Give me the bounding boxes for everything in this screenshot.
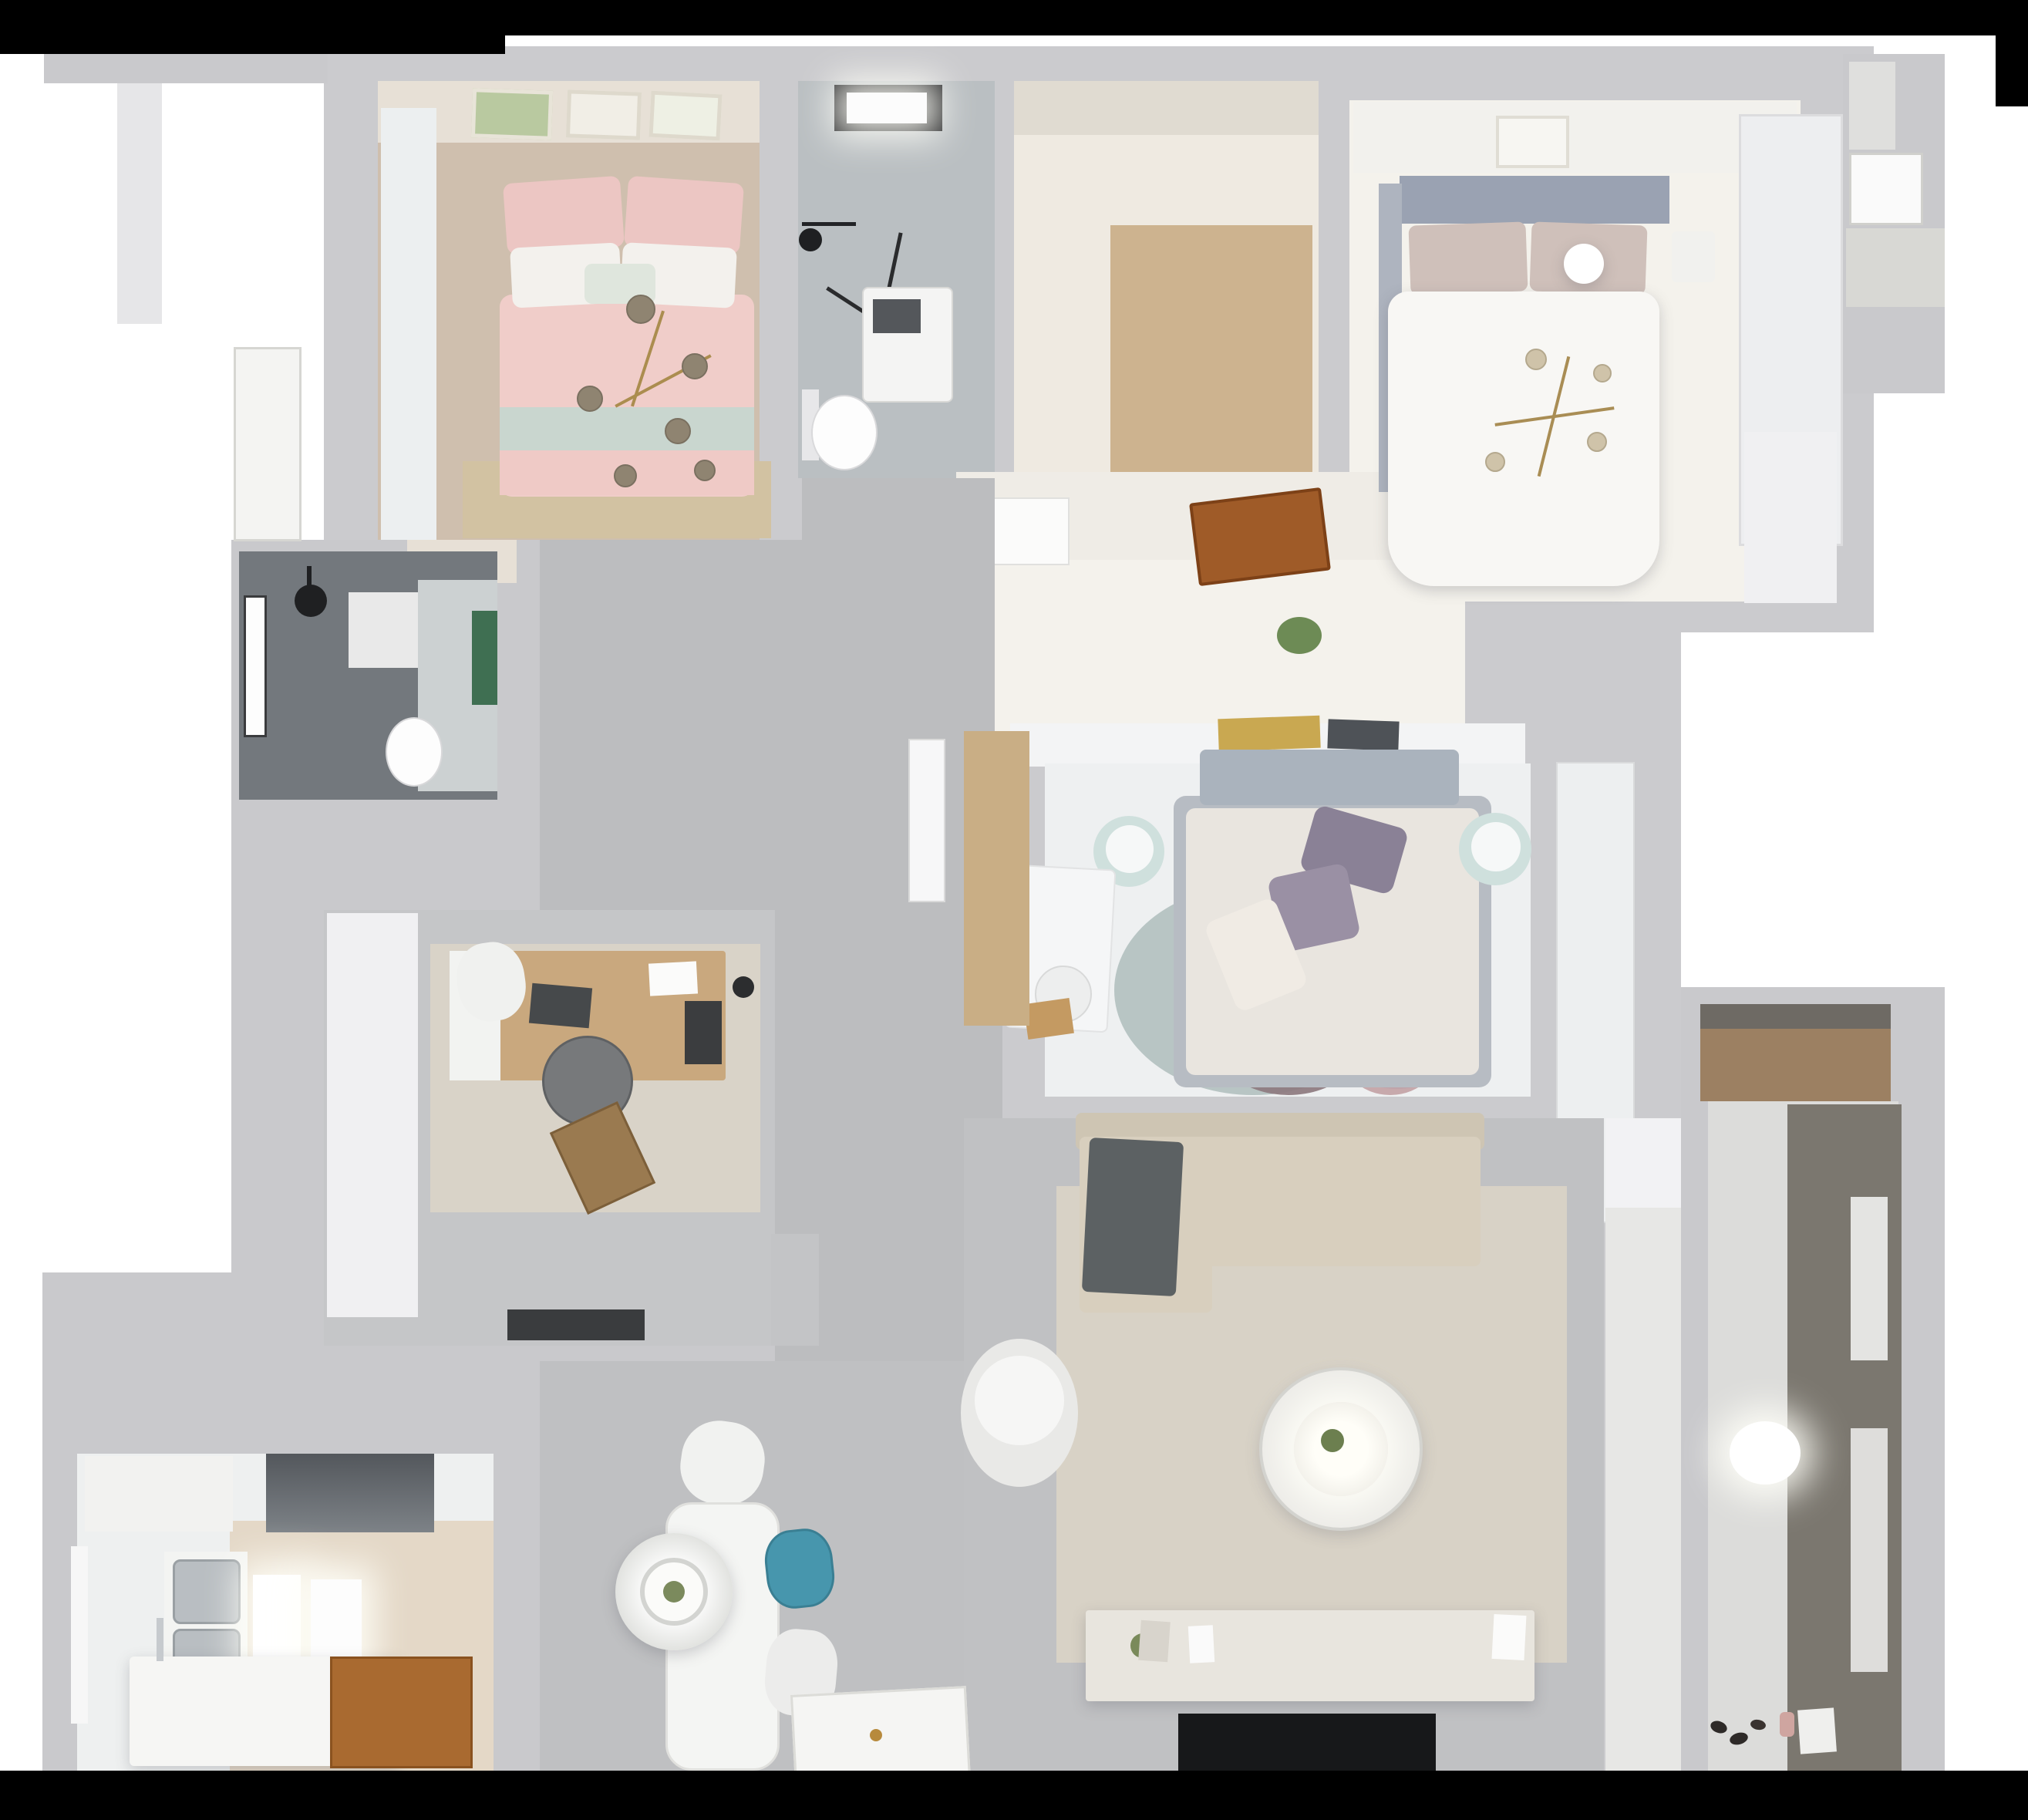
bathroom1-shower-head [799, 228, 822, 251]
tv-console-decor-frame [1138, 1620, 1171, 1663]
study-shelf-dark [685, 1001, 722, 1064]
master-curtain-corner [1744, 432, 1837, 603]
front-door-handle [870, 1729, 882, 1741]
dining-pendant-plant [663, 1581, 685, 1603]
balcony-box-white [1797, 1707, 1837, 1754]
master-door-wood [1189, 487, 1331, 586]
master-chandelier-shade-1 [1525, 349, 1547, 370]
kitchen-fridge-dark [266, 1454, 434, 1532]
foyer-plant [1277, 617, 1322, 654]
balcony-niche-wood-shelf [1700, 1029, 1891, 1101]
bedroom1-chandelier-bulb-1 [626, 295, 655, 324]
closet-ceiling-shade [1014, 81, 1319, 135]
hallway-wood-strip [964, 731, 1029, 1026]
tv-console-decor-right [1492, 1614, 1527, 1660]
bedroom1-chandelier-bulb-3 [577, 386, 603, 412]
bedroom2-pouf-left-top [1106, 825, 1154, 873]
bedroom1-artwork-botanical-2 [566, 89, 642, 140]
balcony-bottle-pink [1780, 1712, 1794, 1737]
bedroom1-chandelier-bulb-6 [694, 460, 716, 481]
tv-panel [1178, 1714, 1436, 1777]
master-pillow-left [1408, 221, 1528, 295]
wall-face-top-left [117, 83, 162, 324]
study-laptop-dark [529, 983, 592, 1029]
living-pouf-seat [975, 1356, 1064, 1445]
bedroom1-chandelier-bulb-5 [614, 464, 637, 487]
bedroom2-pouf-right-top [1471, 822, 1521, 871]
bedroom1-chandelier-bulb-2 [682, 353, 708, 379]
toilet2-bowl [386, 717, 443, 787]
study-door-threshold [771, 1234, 819, 1346]
foyer-floor-terrazzo [956, 560, 1465, 734]
bathroom2-window [244, 595, 267, 737]
coffee-table-plant [1321, 1429, 1344, 1452]
master-duvet [1388, 292, 1659, 586]
hallway-door-leaf [908, 739, 945, 902]
bedroom1-artwork-botanical-3 [648, 91, 722, 141]
master-chandelier-shade-4 [1593, 364, 1612, 383]
bathroom2-green-accent [472, 611, 497, 705]
master-chandelier-shade-2 [1587, 432, 1607, 452]
kitchen-wood-mat [330, 1657, 473, 1768]
right-corridor-louvers [1846, 228, 1945, 307]
bedroom1-chandelier-bulb-4 [665, 418, 691, 444]
master-nightstand-right [1672, 231, 1715, 282]
bathroom2-shower-head [295, 585, 327, 617]
floorplan-render [0, 0, 2028, 1820]
kitchen-faucet [157, 1618, 163, 1661]
sofa-throw-dark [1082, 1137, 1184, 1296]
bedroom2-headboard [1200, 750, 1459, 805]
study-curtain [327, 913, 418, 1317]
bedroom1-curtain [381, 108, 436, 540]
master-sphere-lamp [1564, 244, 1604, 284]
living-curtain-corner [1605, 1118, 1681, 1208]
balcony-blind-slit-1 [1851, 1197, 1888, 1360]
balcony-pendant-ball [1730, 1421, 1801, 1485]
exterior-door-leaf [234, 347, 302, 541]
study-floor-mat [507, 1309, 645, 1340]
bedroom1-artwork-botanical-1 [471, 88, 553, 140]
study-desk-lamp [733, 976, 754, 998]
background-band-bottom [0, 1771, 2028, 1820]
bathroom1-window-glass [847, 93, 927, 123]
balcony-blind-slit-2 [1851, 1428, 1888, 1672]
right-corridor-panel [1849, 62, 1895, 150]
background-band-top-left [0, 0, 505, 54]
kitchen-window [71, 1546, 88, 1724]
balcony-niche-shadow [1700, 1004, 1891, 1029]
washing-machine-drum [873, 299, 921, 333]
right-corridor-window [1849, 153, 1923, 225]
wall-stub-top-left [44, 51, 328, 83]
kitchen-cabinet-top [85, 1456, 233, 1532]
master-artwork-frame [1496, 116, 1569, 168]
coffee-table-glow [1294, 1402, 1388, 1496]
master-chandelier-shade-3 [1485, 452, 1505, 472]
ac-vent-grille [983, 497, 1070, 565]
bedroom1-blanket-mint [500, 407, 754, 452]
master-headboard-slats [1400, 176, 1669, 224]
background-corner-top-right [1996, 0, 2028, 106]
master-ceiling-strip [1353, 102, 1797, 173]
study-desk-papers [648, 961, 698, 996]
hallway-threshold-bath1 [802, 478, 995, 548]
kitchen-sink-basin-1 [173, 1559, 241, 1624]
bedroom2-shelf-book [1218, 716, 1320, 752]
toilet1-bowl [811, 395, 878, 470]
living-motif-tile-strip [1605, 1202, 1681, 1774]
bathroom1-shower-arm [802, 222, 856, 226]
tv-console-decor-vase [1188, 1625, 1214, 1663]
bedroom2-shelf-laptop [1327, 719, 1399, 750]
bedroom2-stool-wood [1023, 998, 1074, 1040]
